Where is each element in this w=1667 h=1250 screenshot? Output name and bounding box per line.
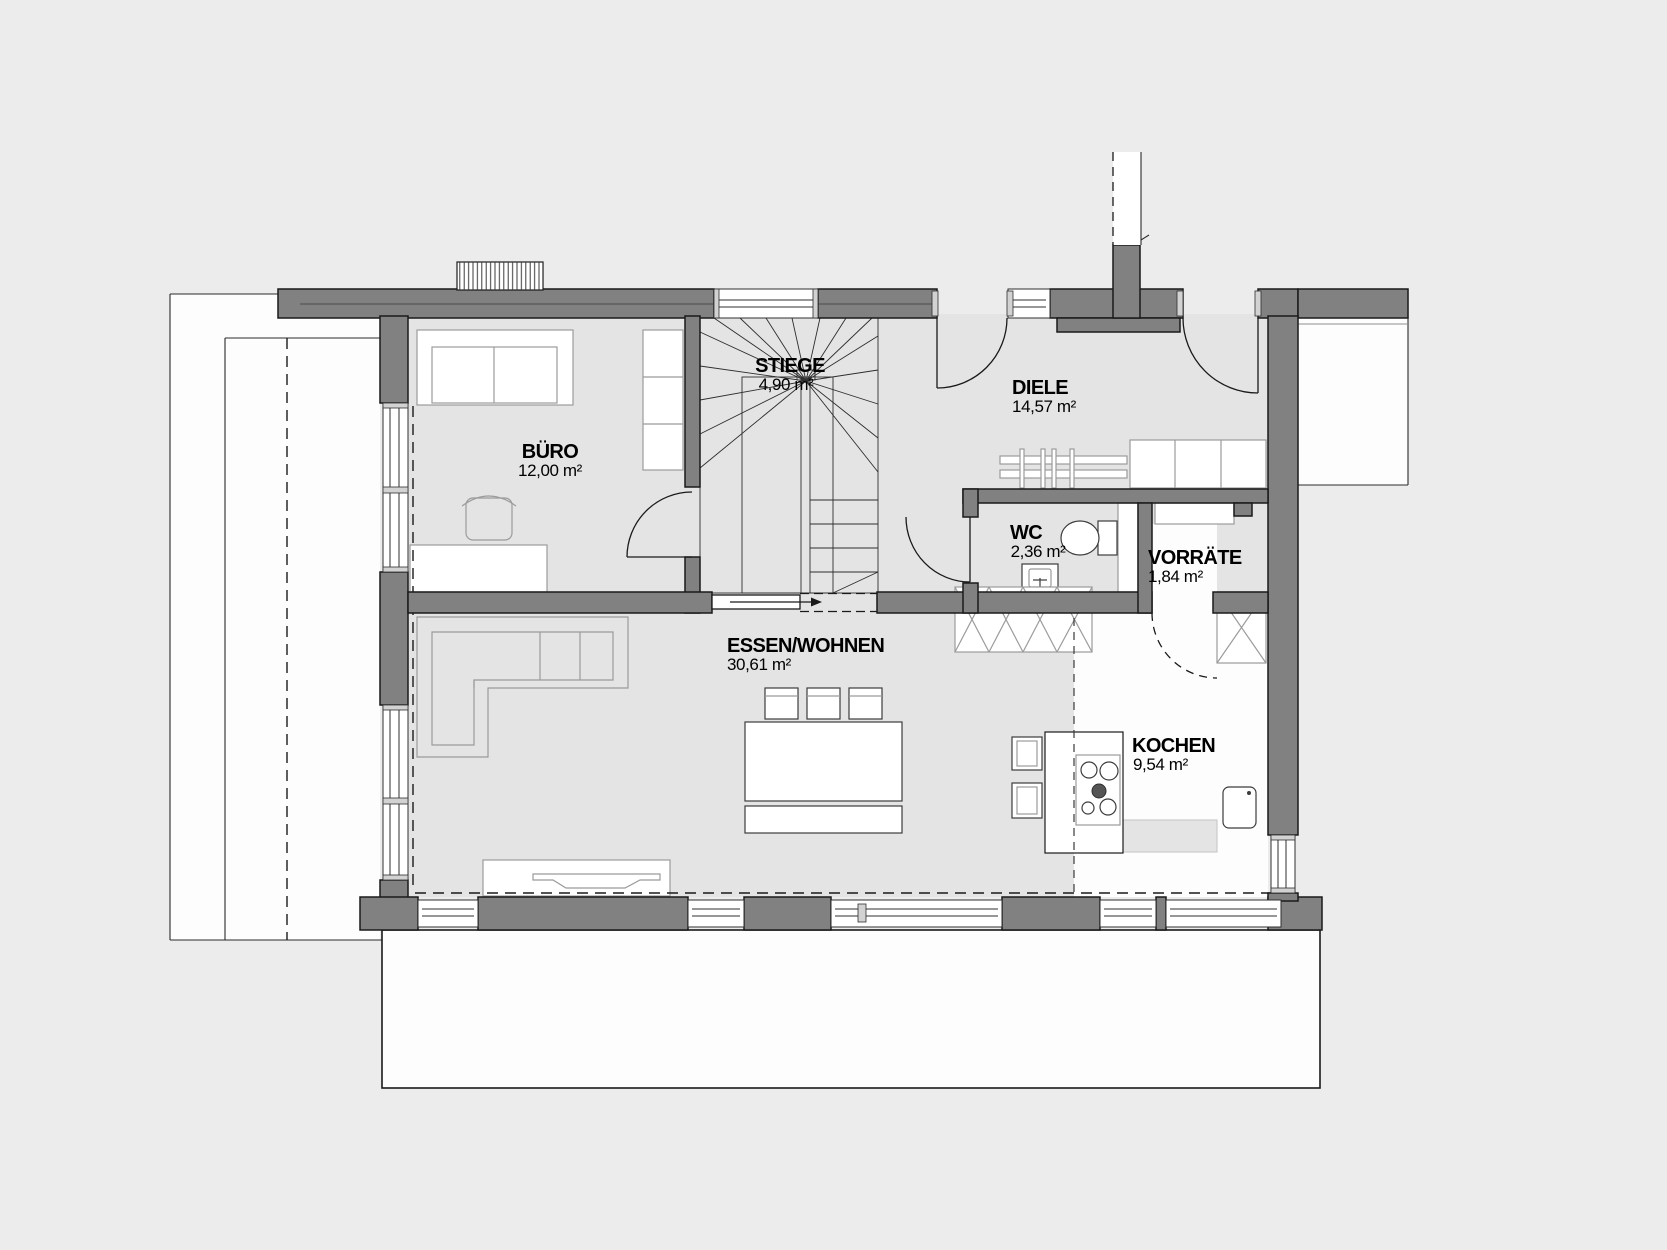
fridge-icon: [1223, 787, 1256, 828]
room-area-wc: 2,36 m²: [1011, 542, 1067, 561]
room-area-vorraete: 1,84 m²: [1148, 567, 1204, 586]
neighbor-wall: [1298, 289, 1408, 318]
counter-mat: [1123, 820, 1217, 852]
room-label-buero: BÜRO: [522, 440, 579, 463]
wc-north-wall: [963, 489, 1268, 503]
buero-west-window: [383, 403, 408, 572]
roof-vent: [457, 262, 543, 290]
dining-set: [745, 688, 902, 833]
west-wall: [380, 316, 408, 403]
office-sofa: [417, 330, 573, 405]
kitchen-island: [1045, 732, 1123, 853]
kitchen-east-window: [1271, 835, 1295, 893]
terrace: [382, 930, 1320, 1088]
south-wall: [360, 897, 418, 930]
toilet-icon: [1061, 521, 1117, 555]
room-area-essen: 30,61 m²: [727, 655, 792, 674]
room-label-vorraete: VORRÄTE: [1148, 546, 1242, 569]
sideboard: [1130, 440, 1266, 488]
room-label-essen: ESSEN/WOHNEN: [727, 635, 884, 657]
room-area-stiege: 4,90 m²: [759, 375, 815, 394]
tv-lowboard: [483, 860, 670, 896]
pantry-shelf: [1155, 503, 1234, 524]
living-west-window: [383, 705, 408, 880]
room-area-diele: 14,57 m²: [1012, 397, 1077, 416]
chimney: [1113, 245, 1140, 318]
desk: [410, 545, 547, 592]
room-label-diele: DIELE: [1012, 377, 1068, 399]
carport-area: [170, 294, 382, 940]
buero-stair-wall: [685, 316, 700, 487]
floorplan-page: BÜRO 12,00 m² STIEGE 4,90 m² DIELE 14,57…: [0, 0, 1667, 1250]
office-shelf: [643, 330, 683, 470]
room-label-wc: WC: [1010, 522, 1042, 544]
east-wall: [1268, 316, 1298, 835]
diele-window: [1008, 289, 1050, 318]
stair-window: [714, 289, 818, 318]
floorplan-drawing: BÜRO 12,00 m² STIEGE 4,90 m² DIELE 14,57…: [0, 0, 1667, 1250]
living-wall: [408, 592, 712, 613]
duct: [1118, 503, 1138, 592]
room-area-buero: 12,00 m²: [518, 461, 583, 480]
room-label-stiege: STIEGE: [755, 355, 825, 377]
dining-table: [745, 722, 902, 801]
dining-bench: [745, 806, 902, 833]
room-label-kochen: KOCHEN: [1132, 735, 1215, 757]
room-area-kochen: 9,54 m²: [1133, 755, 1189, 774]
